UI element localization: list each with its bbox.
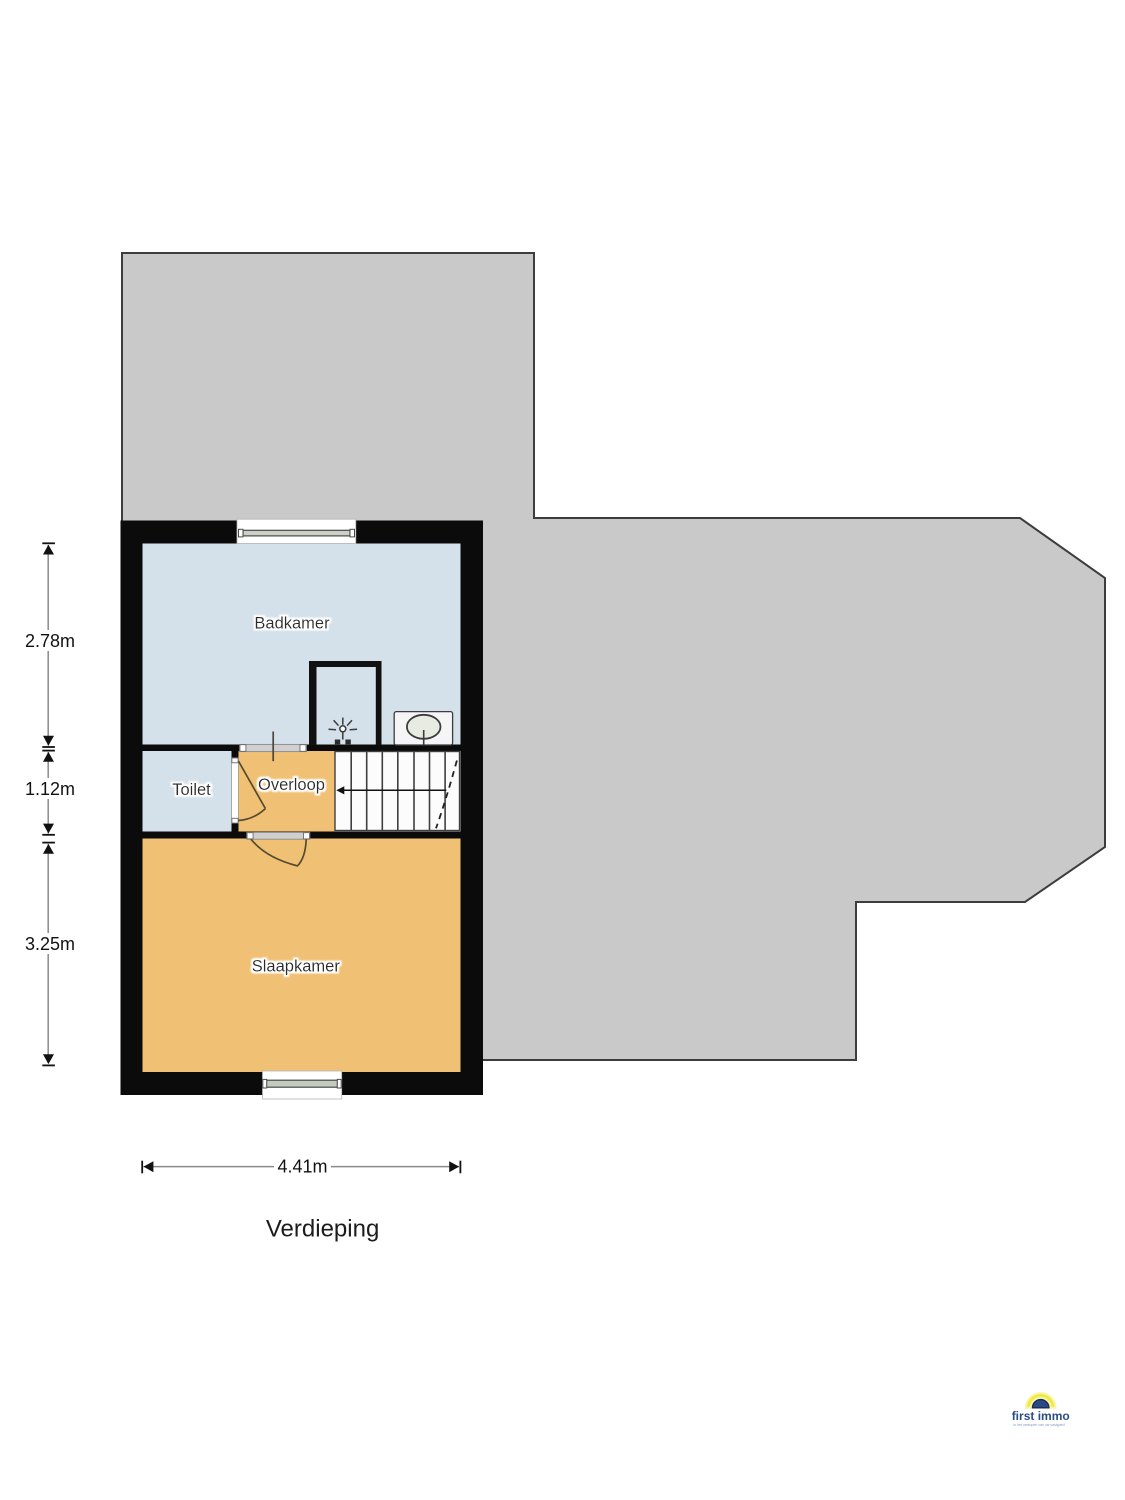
svg-text:1.12m: 1.12m [25, 779, 75, 799]
svg-text:Overloop: Overloop [258, 776, 325, 794]
svg-text:in het verkopen van uw vastgoe: in het verkopen van uw vastgoed [1013, 1423, 1064, 1427]
svg-text:Badkamer: Badkamer [254, 615, 330, 633]
svg-text:Toilet: Toilet [172, 781, 211, 799]
svg-text:first immo: first immo [1012, 1409, 1070, 1423]
svg-text:4.41m: 4.41m [277, 1157, 327, 1177]
svg-text:Verdieping: Verdieping [266, 1216, 379, 1243]
svg-text:Slaapkamer: Slaapkamer [252, 958, 341, 976]
svg-text:2.78m: 2.78m [25, 631, 75, 651]
svg-text:3.25m: 3.25m [25, 934, 75, 954]
